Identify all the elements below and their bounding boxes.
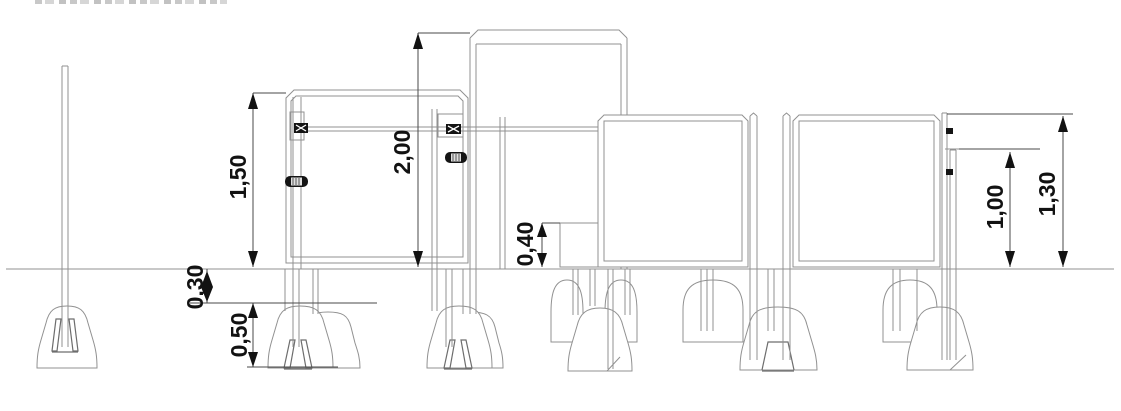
dimension-label-sign1-height: 1,50 (225, 155, 251, 200)
foot-group-b (683, 269, 817, 371)
dimension-label-panel-height: 1,30 (1034, 172, 1060, 217)
single-post-assembly (37, 66, 97, 368)
dimension-label-base-offset: 0,30 (182, 265, 208, 310)
foot-group-mid (427, 269, 503, 369)
foot-group-a (551, 269, 637, 371)
elevation-drawing: 1,50 2,00 0,40 1,00 1,30 0,30 0,50 (0, 0, 1121, 411)
foot-group-c (883, 269, 973, 370)
dimension-label-tall-frame-height: 2,00 (389, 130, 415, 175)
right-posts (942, 113, 959, 269)
cropped-title-fragment (35, 0, 227, 4)
base-foot (37, 306, 97, 368)
clamp-hardware (285, 123, 467, 187)
large-panel-a (598, 115, 748, 267)
panel-posts (750, 113, 790, 269)
dimension-label-base-height: 0,50 (226, 313, 252, 358)
sign-1-posts (290, 97, 505, 269)
dimension-label-ballast-box-height: 0,40 (512, 222, 538, 267)
clip-marker (946, 169, 953, 175)
foot-group-left (268, 269, 360, 369)
dimension-label-attachment-height: 1,00 (982, 185, 1008, 230)
large-panel-b (793, 115, 940, 267)
ballast-box (560, 223, 598, 267)
clip-marker (946, 128, 953, 134)
technical-drawing-canvas: 1,50 2,00 0,40 1,00 1,30 0,30 0,50 (0, 0, 1121, 411)
sign-panel-1 (286, 90, 468, 263)
